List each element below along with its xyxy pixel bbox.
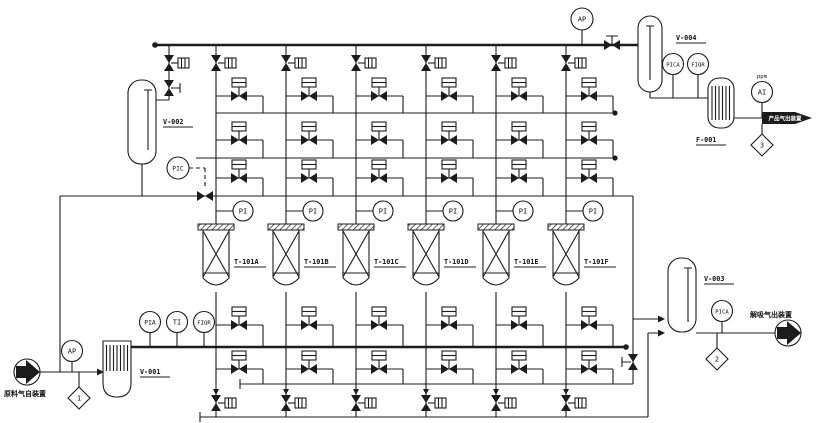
pic-control-valve-icon [197,191,213,201]
control-valve-icon [581,351,597,374]
control-valve-icon [301,160,317,183]
adsorber-flange [408,224,444,230]
f001-tag: F-001 [696,136,716,144]
program-valve-icon [164,55,189,71]
instrument-ap-top: AP [571,8,593,45]
header-6 [240,379,633,389]
control-valve-icon [371,307,387,330]
v004-tag: V-004 [676,34,696,42]
svg-text:TI: TI [173,319,181,327]
filter-f001 [708,78,734,128]
control-valve-icon [301,307,317,330]
pi-label: PI [519,208,527,216]
svg-text:2: 2 [715,356,719,364]
adsorber-column: PI T-101E [478,45,546,417]
flow-arrow-icon [423,389,429,395]
v003-lower-nozzle-line [648,333,662,417]
control-valve-icon [441,351,457,374]
program-valve-icon [211,55,236,71]
adsorber-tag: T-101F [584,258,609,266]
control-valve-icon [581,160,597,183]
program-valve-icon [281,395,306,411]
stream-product-arrow: 产品气出装置 [762,112,812,124]
control-valve-icon [441,160,457,183]
instrument-pia: PIA [140,312,161,348]
tiepoint-3: 3 [751,124,773,156]
vessel-v004 [638,16,662,92]
svg-text:AP: AP [68,348,76,356]
adsorber-vessel [483,230,509,285]
tiepoint-2: 2 [706,333,728,370]
offgas-stream-label: 解吸气出装置 [750,310,792,319]
flow-arrow-icon [563,389,569,395]
program-valve-icon [281,55,306,71]
program-valve-icon [351,395,376,411]
manual-valve-icon [622,354,638,370]
control-valve-icon [231,307,247,330]
vessel-v003 [668,258,696,332]
instrument-pica-v004: PICA [663,54,684,99]
adsorber-flange [338,224,374,230]
pi-label: PI [309,208,317,216]
adsorber-column: PI T-101F [548,45,616,417]
control-valve-icon [581,122,597,145]
program-valve-icon [561,395,586,411]
manual-valve-icon [164,80,180,96]
v004-bottom-line [650,92,708,98]
control-valve-icon [301,78,317,101]
svg-text:PIA: PIA [144,318,156,326]
control-valve-icon [371,160,387,183]
flow-arrow-icon [493,389,499,395]
program-valve-icon [421,395,446,411]
control-valve-icon [371,122,387,145]
pi-label: PI [449,208,457,216]
ai-note: ppm [757,74,768,80]
pi-label: PI [379,208,387,216]
svg-text:FIQR: FIQR [197,320,211,326]
bottom-header [200,412,648,422]
svg-text:AP: AP [578,16,586,24]
control-valve-icon [371,351,387,374]
control-valve-icon [231,160,247,183]
instrument-ti: TI [167,312,188,348]
adsorber-flange [198,224,234,230]
adsorber-flange [268,224,304,230]
control-valve-icon [441,307,457,330]
tiepoint-1: 1 [68,372,90,409]
svg-text:PICA: PICA [715,309,729,315]
flow-arrow-icon [213,389,219,395]
flow-arrow-icon [353,389,359,395]
pi-label: PI [239,208,247,216]
svg-text:3: 3 [760,142,764,150]
vessel-v001 [103,341,131,397]
adsorber-tag: T-101E [514,258,539,266]
adsorber-vessel [553,230,579,285]
control-valve-icon [511,78,527,101]
pic-signal-line [189,168,205,188]
pid-canvas: V-002 V-001 V-003 V-004 F-001 AP PIC AP [0,0,828,423]
adsorber-vessel [273,230,299,285]
control-valve-icon [581,307,597,330]
v003-tag: V-003 [704,275,724,283]
hand-valve-icon [604,36,620,50]
vessel-v002 [128,80,156,164]
flow-arrow-icon [283,389,289,395]
svg-text:PICA: PICA [666,62,680,68]
stream-offgas-arrow [775,320,801,346]
svg-text:AI: AI [758,89,766,97]
control-valve-icon [511,160,527,183]
program-valve-icon [491,55,516,71]
adsorber-vessel [413,230,439,285]
v002-tag: V-002 [163,118,183,126]
adsorber-column: PI T-101B [268,45,336,417]
svg-text:PIC: PIC [172,164,184,172]
adsorber-vessel [343,230,369,285]
adsorber-column: PI T-101A [198,45,266,417]
instrument-ap-feed: AP [62,341,83,373]
instrument-pic: PIC [167,157,189,179]
control-valve-icon [511,351,527,374]
stream-inlet-arrow [14,359,40,385]
control-valve-icon [231,122,247,145]
inlet-stream-label: 原料气自装置 [4,389,46,398]
program-valve-icon [351,55,376,71]
pid-diagram: V-002 V-001 V-003 V-004 F-001 AP PIC AP [0,0,828,423]
svg-text:1: 1 [77,395,81,403]
adsorber-vessel [203,230,229,285]
adsorber-flange [548,224,584,230]
adsorber-column: PI T-101D [408,45,476,417]
control-valve-icon [231,351,247,374]
control-valve-icon [511,122,527,145]
control-valve-icon [301,122,317,145]
adsorber-column: PI T-101C [338,45,406,417]
instrument-fiqr-feed: FIQR [194,312,215,348]
product-stream-label: 产品气出装置 [768,115,802,123]
pi-label: PI [589,208,597,216]
control-valve-icon [441,122,457,145]
svg-text:FIQR: FIQR [691,62,705,68]
adsorber-tag: T-101C [374,258,399,266]
program-valve-icon [421,55,446,71]
instrument-ai: AI ppm [752,74,773,118]
adsorber-tag: T-101A [234,258,259,266]
control-valve-icon [301,351,317,374]
adsorber-tag: T-101D [444,258,469,266]
adsorber-tag: T-101B [304,258,329,266]
control-valve-icon [511,307,527,330]
program-valve-icon [561,55,586,71]
v001-tag: V-001 [140,368,160,376]
instrument-pica-v003: PICA [712,301,733,334]
instrument-fiqr-v004: FIQR [688,54,709,99]
control-valve-icon [441,78,457,101]
program-valve-icon [491,395,516,411]
adsorber-flange [478,224,514,230]
control-valve-icon [371,78,387,101]
control-valve-icon [231,78,247,101]
control-valve-icon [581,78,597,101]
program-valve-icon [211,395,236,411]
